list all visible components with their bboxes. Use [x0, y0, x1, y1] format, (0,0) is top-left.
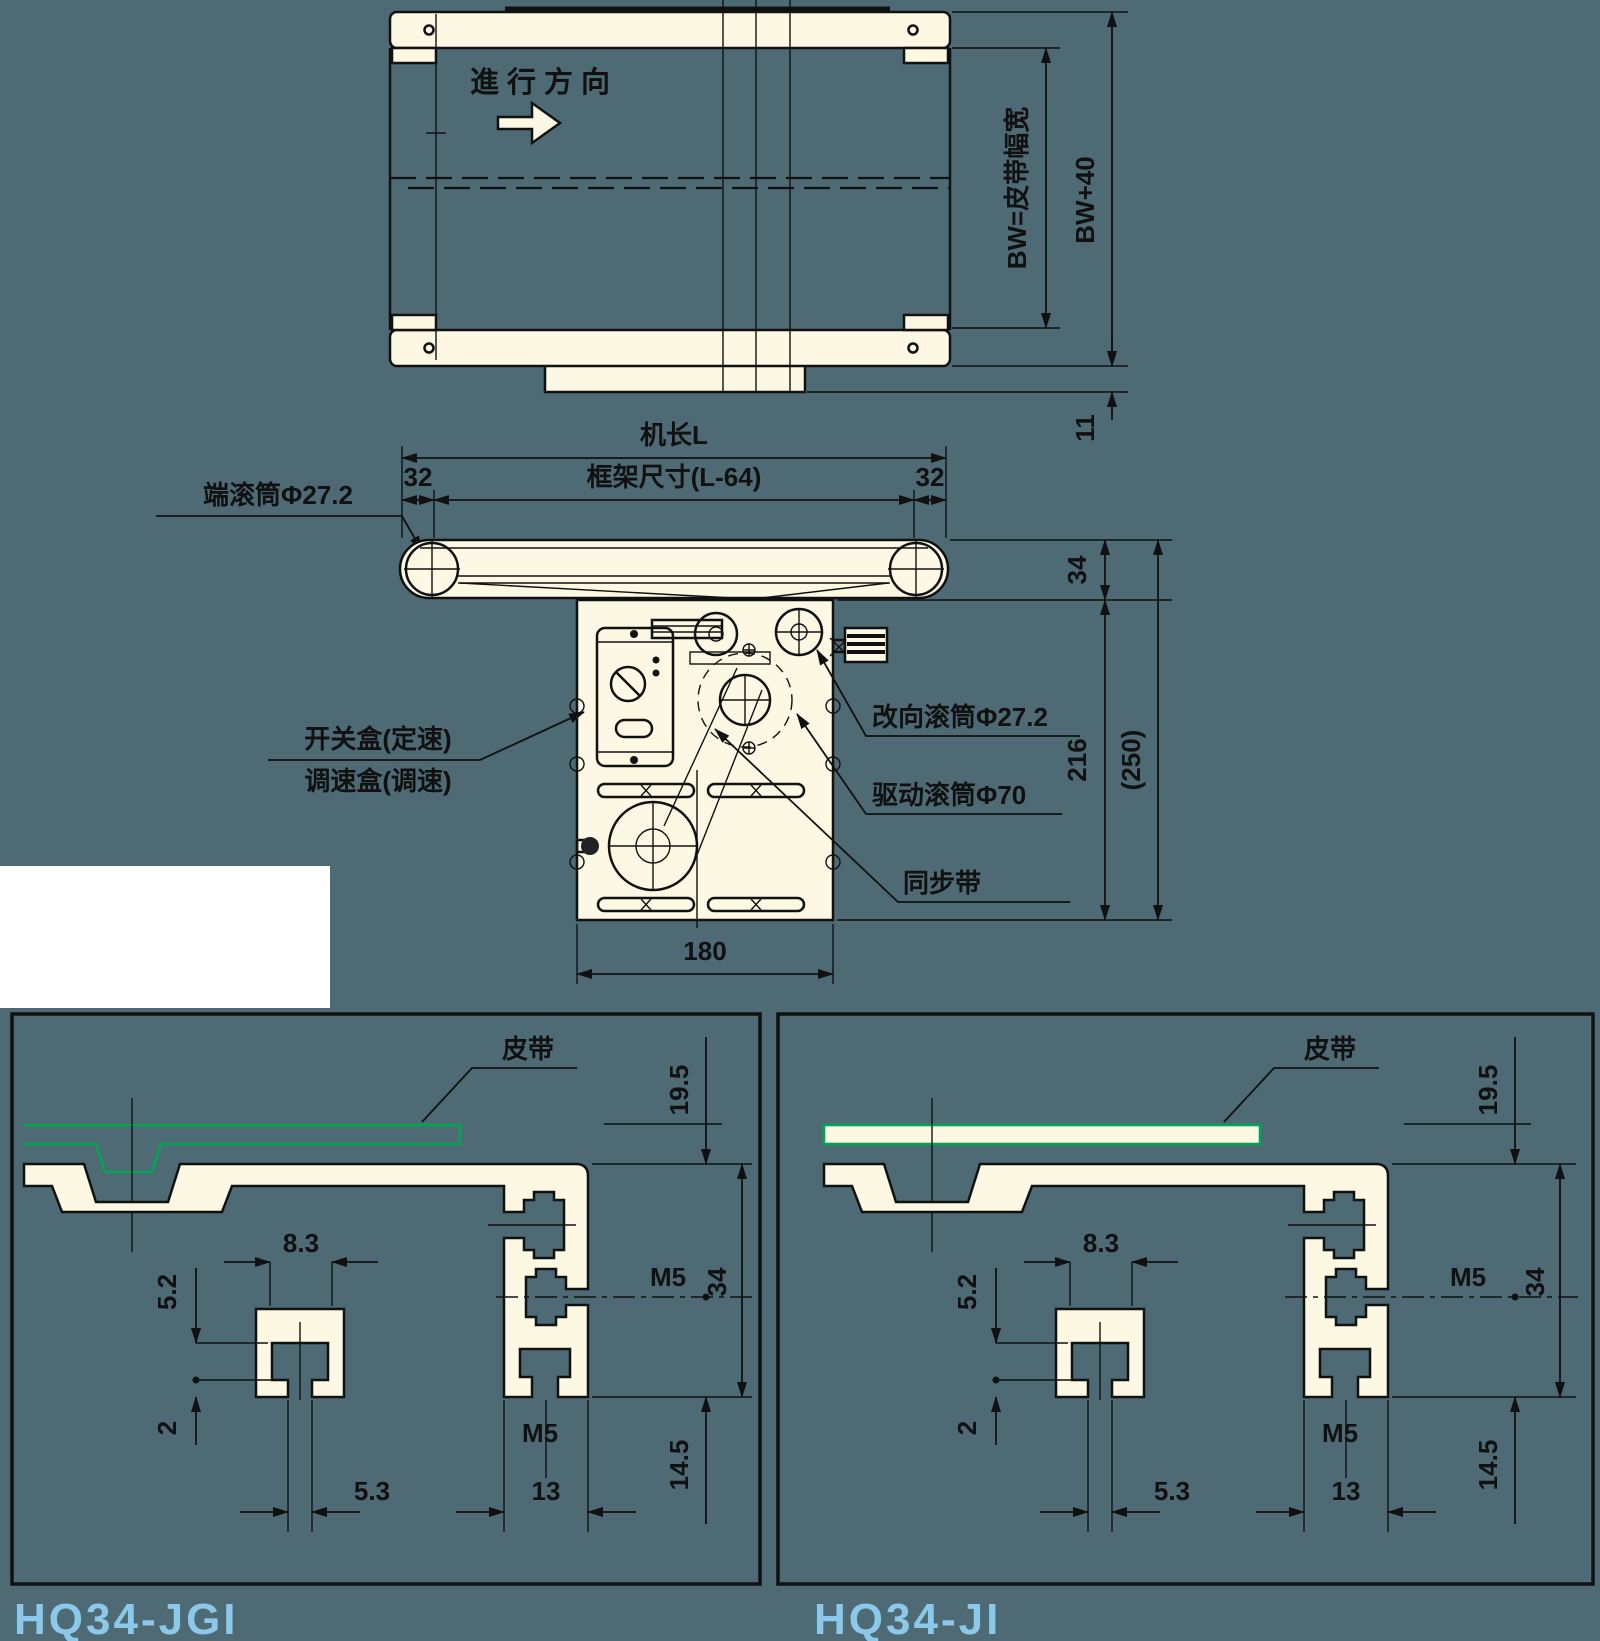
dim-belt-width: BW=皮带幅宽: [952, 48, 1060, 328]
dim-5-3: 5.3: [240, 1400, 390, 1532]
svg-text:BW+40: BW+40: [1070, 156, 1100, 243]
dim-2: 2: [952, 1397, 996, 1445]
label-end-roller: 端滚筒Φ27.2: [156, 480, 422, 551]
svg-text:开关盒(定速): 开关盒(定速): [304, 724, 451, 754]
rail-profile-cross-section: [824, 1164, 1388, 1397]
svg-text:13: 13: [1332, 1476, 1361, 1506]
panel-hq34-ji: 皮带 M5 19.5 34 14.5 8.3: [778, 1014, 1593, 1641]
m5-bottom-label: M5: [1322, 1418, 1358, 1448]
svg-text:34: 34: [1062, 555, 1092, 584]
belt-label: 皮带: [502, 1034, 554, 1064]
svg-text:5.3: 5.3: [354, 1476, 390, 1506]
dim-2: 2: [152, 1397, 196, 1445]
model-label: HQ34-JI: [814, 1595, 1001, 1641]
svg-text:驱动滚筒Φ70: 驱动滚筒Φ70: [872, 780, 1026, 810]
m5-side-label: M5: [650, 1262, 686, 1292]
svg-text:32: 32: [404, 462, 433, 492]
svg-text:同步带: 同步带: [903, 868, 981, 898]
white-patch: [0, 866, 330, 1008]
dim-14-5: 14.5: [664, 1397, 706, 1524]
bottom-rail: [390, 330, 950, 366]
svg-text:5.3: 5.3: [1154, 1476, 1190, 1506]
svg-text:180: 180: [683, 936, 726, 966]
belt-center-dashed-lines: [390, 178, 950, 188]
dim-overall-width: BW+40: [952, 12, 1128, 366]
direction-label: 進行方向: [470, 65, 618, 99]
dim-frame-size: 32 框架尺寸(L-64) 32: [402, 462, 946, 538]
dim-5-3: 5.3: [1040, 1400, 1190, 1532]
svg-text:5.2: 5.2: [152, 1274, 182, 1310]
dim-19-5: 19.5: [1392, 1037, 1576, 1164]
svg-text:14.5: 14.5: [1473, 1440, 1503, 1491]
dim-14-5: 14.5: [1473, 1397, 1515, 1524]
svg-text:14.5: 14.5: [664, 1440, 694, 1491]
rail-profile-cross-section: [24, 1164, 588, 1397]
belt-cross-section-flat: [824, 1125, 1260, 1144]
dim-250: (250): [1116, 540, 1158, 920]
switch-box: [597, 628, 673, 766]
svg-text:端滚筒Φ27.2: 端滚筒Φ27.2: [203, 480, 353, 510]
svg-text:BW=皮带幅宽: BW=皮带幅宽: [1002, 107, 1032, 270]
svg-text:8.3: 8.3: [283, 1228, 319, 1258]
svg-text:5.2: 5.2: [952, 1274, 982, 1310]
panel-hq34-jgi: 皮带 M5 19.5 34 14.5: [12, 1014, 760, 1641]
technical-drawing-page: 進行方向 BW=皮带幅宽 BW+40 11 机长L: [0, 0, 1600, 1641]
conveyor-rail-side: [400, 540, 948, 598]
label-switch-box: 开关盒(定速) 调速盒(调速): [268, 712, 584, 796]
belt-label: 皮带: [1304, 1034, 1356, 1064]
top-rail: [390, 12, 950, 48]
svg-text:(250): (250): [1116, 730, 1146, 791]
dim-8-3: 8.3: [224, 1228, 378, 1306]
svg-text:34: 34: [702, 1267, 732, 1296]
drive-housing: [570, 600, 887, 928]
svg-text:2: 2: [152, 1421, 182, 1435]
top-view: 進行方向 BW=皮带幅宽 BW+40 11: [390, 0, 1128, 442]
svg-text:框架尺寸(L-64): 框架尺寸(L-64): [587, 462, 762, 492]
svg-text:改向滚筒Φ27.2: 改向滚筒Φ27.2: [872, 702, 1048, 732]
svg-text:19.5: 19.5: [664, 1065, 694, 1116]
svg-text:8.3: 8.3: [1083, 1228, 1119, 1258]
tension-knob: [830, 628, 887, 662]
m5-bottom-label: M5: [522, 1418, 558, 1448]
svg-text:19.5: 19.5: [1473, 1065, 1503, 1116]
dim-19-5: 19.5: [592, 1037, 752, 1164]
svg-text:机长L: 机长L: [640, 420, 708, 450]
svg-text:13: 13: [532, 1476, 561, 1506]
dim-8-3: 8.3: [1024, 1228, 1178, 1306]
svg-text:216: 216: [1062, 738, 1092, 781]
direction-arrow-icon: [498, 103, 560, 143]
svg-text:2: 2: [952, 1421, 982, 1435]
svg-text:32: 32: [916, 462, 945, 492]
svg-text:调速盒(调速): 调速盒(调速): [304, 766, 451, 796]
model-label: HQ34-JGI: [14, 1595, 239, 1641]
m5-side-label: M5: [1450, 1262, 1486, 1292]
svg-text:11: 11: [1070, 414, 1100, 442]
dim-180: 180: [577, 924, 833, 984]
svg-text:34: 34: [1520, 1267, 1550, 1296]
